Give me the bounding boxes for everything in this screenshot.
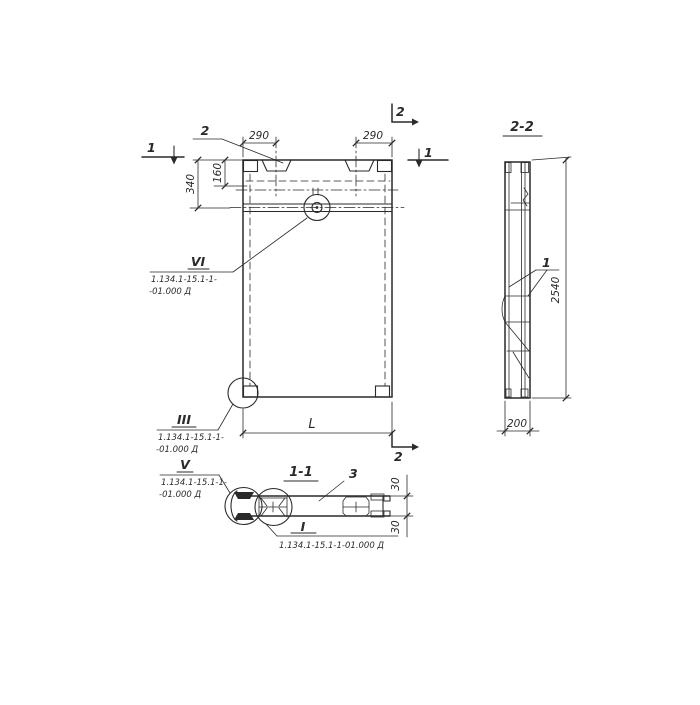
embed-block-top-left [244, 161, 258, 172]
embed-block-top-right [378, 161, 392, 172]
section-1-1-title: 1-1 [289, 465, 313, 480]
detail-i-doc: 1.134.1-15.1-1-01.000 Д [279, 541, 384, 551]
dim-340-text: 340 [185, 174, 197, 194]
section-mark-2-top: 2 [392, 104, 419, 126]
detail-v-doc2: -01.000 Д [159, 490, 202, 500]
notch-right [345, 160, 374, 171]
detail-vi-doc2: -01.000 Д [149, 287, 192, 297]
dim-340-160: 340 160 [185, 157, 247, 211]
detail-callout-v: V 1.134.1-15.1-1- -01.000 Д [159, 457, 230, 500]
leader-2-text: 2 [201, 123, 210, 138]
section-2-2-view: 2-2 1 [497, 120, 571, 436]
detail-i-label: I [301, 519, 306, 534]
dim-L: L [240, 402, 395, 438]
detail-vi-label: VI [191, 254, 206, 269]
dim-200-text: 200 [507, 418, 527, 430]
detail-iii-label: III [177, 412, 191, 427]
dim-30-bottom-text: 30 [390, 520, 402, 534]
section-1-1-view: 1-1 [159, 457, 413, 551]
section-mark-1-left: 1 [142, 140, 184, 165]
item-1-text: 1 [542, 255, 551, 270]
dim-290-right-text: 290 [363, 130, 383, 142]
item-3-text: 3 [349, 466, 358, 481]
section-1-1-right-end [371, 494, 390, 517]
dim-290-right: 290 [353, 130, 395, 196]
section-2-2-key-detail [502, 296, 530, 378]
detail-vi-doc1: 1.134.1-15.1-1- [151, 275, 217, 285]
detail-iii-doc2: -01.000 Д [156, 445, 199, 455]
cut-1-left-text: 1 [147, 140, 156, 155]
cut-1-right-text: 1 [424, 145, 433, 160]
embed-block-bottom-right [376, 386, 390, 397]
detail-callout-iii: III 1.134.1-15.1-1- -01.000 Д [156, 404, 233, 455]
notch-left [262, 160, 291, 171]
dim-160-text: 160 [212, 163, 224, 183]
section-mark-1-right: 1 [408, 145, 448, 168]
detail-callout-i: I 1.134.1-15.1-1-01.000 Д [266, 519, 398, 551]
dim-30-30: 30 30 [390, 475, 413, 537]
dim-L-text: L [308, 417, 315, 432]
void-detail-left [259, 497, 287, 517]
section-mark-2-bottom: 2 [392, 432, 419, 464]
dim-2540-text: 2540 [550, 276, 562, 303]
panel-outline [243, 160, 392, 397]
section-2-2-title: 2-2 [510, 120, 534, 135]
detail-v-doc1: 1.134.1-15.1-1- [161, 478, 227, 488]
dim-200: 200 [497, 401, 539, 436]
front-view: 290 290 340 160 [142, 104, 448, 464]
detail-callout-vi: VI 1.134.1-15.1-1- -01.000 Д [149, 218, 307, 297]
dim-290-left-text: 290 [249, 130, 269, 142]
dim-2540: 2540 [532, 157, 571, 401]
detail-iii-doc1: 1.134.1-15.1-1- [158, 433, 224, 443]
embed-block-bottom-left [244, 386, 258, 397]
cut-2-bottom-text: 2 [394, 449, 403, 464]
dim-30-top-text: 30 [390, 477, 402, 491]
cut-2-top-text: 2 [396, 104, 405, 119]
drawing-sheet: 290 290 340 160 [0, 0, 700, 700]
engineering-drawing: 290 290 340 160 [0, 0, 700, 700]
void-detail-middle [343, 497, 369, 516]
detail-v-label: V [180, 457, 191, 472]
